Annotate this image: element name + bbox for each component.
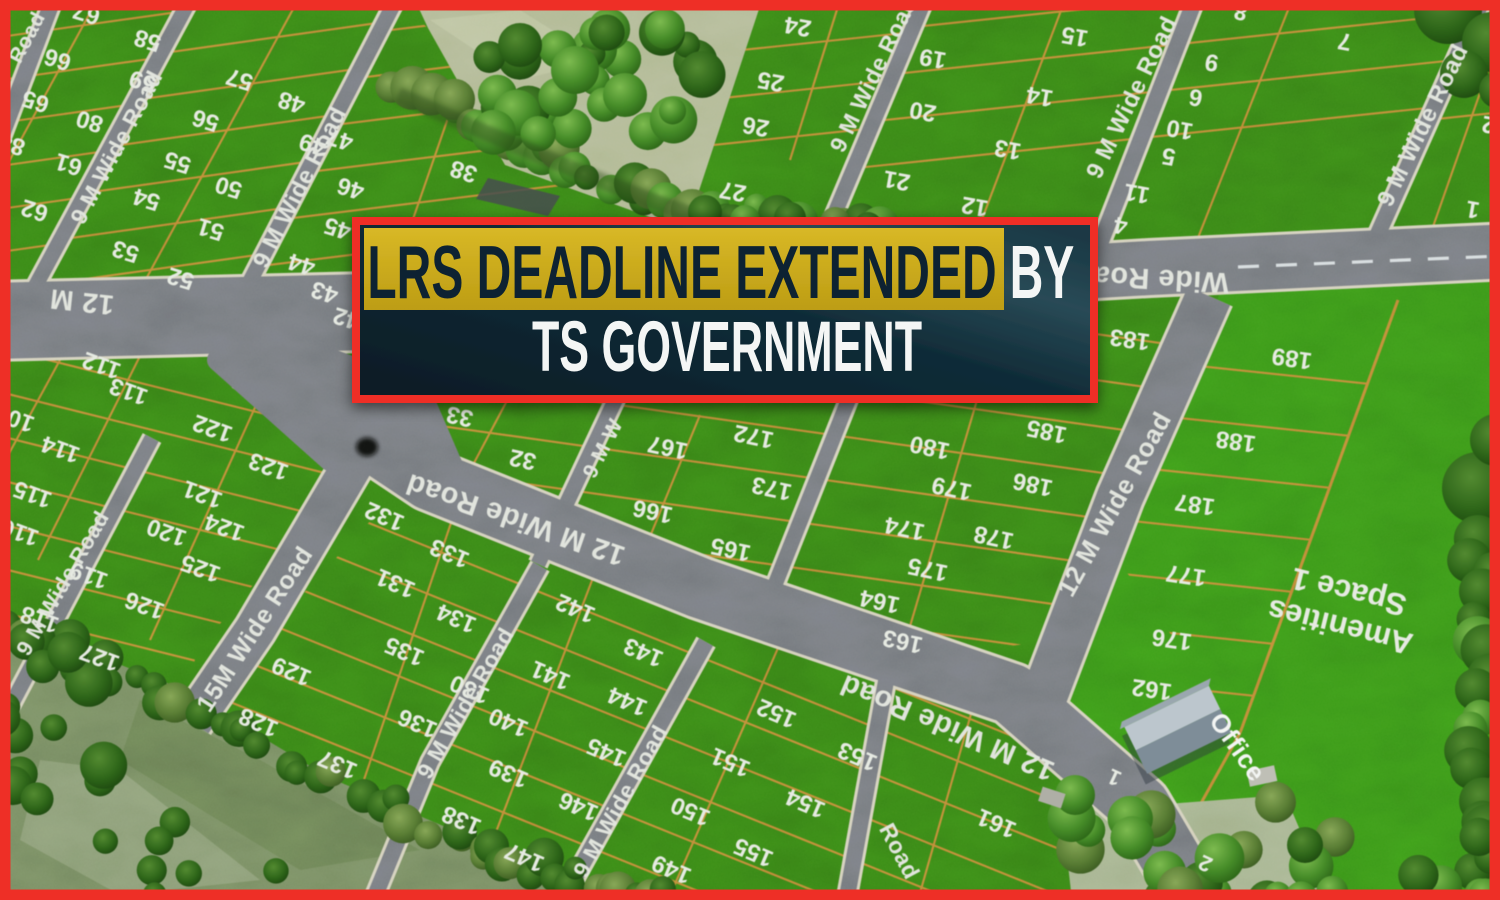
svg-text:BY: BY bbox=[1010, 232, 1075, 315]
svg-text:TS GOVERNMENT: TS GOVERNMENT bbox=[532, 306, 922, 386]
svg-text:LRS DEADLINE EXTENDED: LRS DEADLINE EXTENDED bbox=[367, 231, 996, 314]
